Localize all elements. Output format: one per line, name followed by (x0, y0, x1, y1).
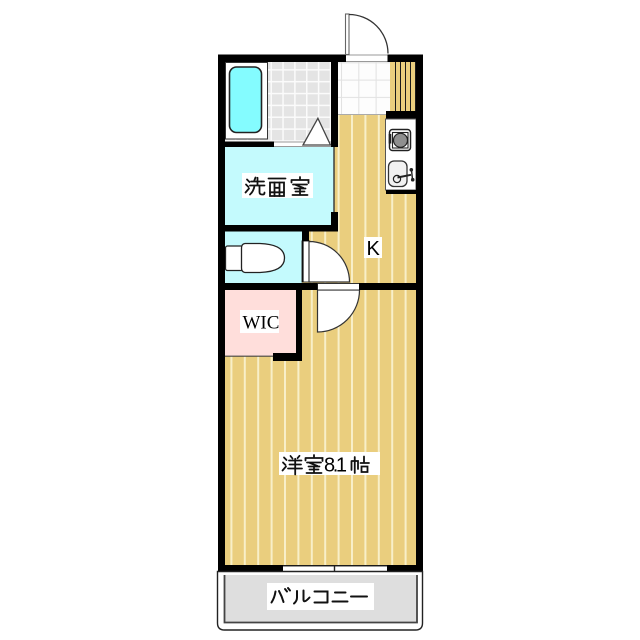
svg-text:K: K (367, 238, 381, 260)
svg-text:8.1: 8.1 (324, 455, 347, 477)
svg-text:WIC: WIC (243, 313, 280, 334)
